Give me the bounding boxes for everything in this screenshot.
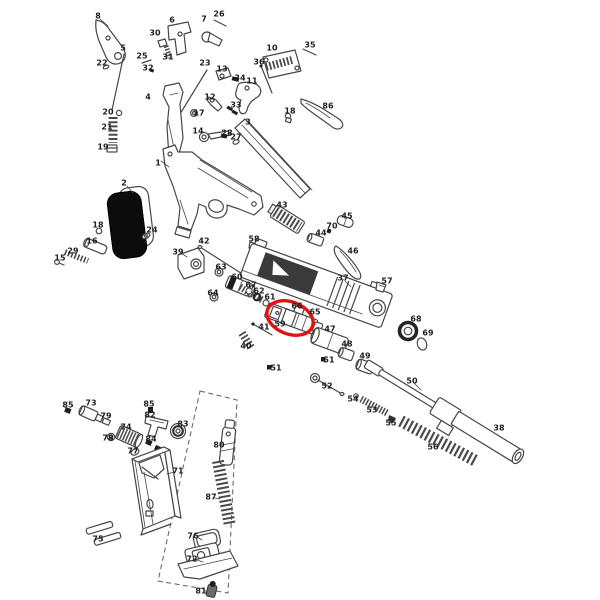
part-label-53: 53 <box>366 406 377 415</box>
part-label-49: 49 <box>359 352 371 361</box>
part-label-62: 62 <box>253 287 264 296</box>
part-label-7: 7 <box>201 15 207 24</box>
part-label-18: 18 <box>92 221 104 230</box>
part-label-58: 58 <box>248 235 260 244</box>
part-label-13: 13 <box>216 65 227 74</box>
part-label-11: 11 <box>246 77 258 86</box>
part-label-17: 17 <box>193 109 204 118</box>
part-label-48: 48 <box>341 340 353 349</box>
part-label-16: 16 <box>86 237 98 246</box>
part-label-64: 64 <box>207 289 219 298</box>
part-label-68: 68 <box>410 315 422 324</box>
valve-81 <box>206 580 219 598</box>
part-label-6: 6 <box>169 16 175 25</box>
part-label-75: 75 <box>92 535 104 544</box>
part-label-60: 60 <box>231 273 243 282</box>
part-label-23: 23 <box>199 59 210 68</box>
part-label-25: 25 <box>136 52 148 61</box>
part-label-47: 47 <box>324 325 335 334</box>
part-label-84: 84 <box>145 435 157 444</box>
exploded-diagram-svg: 8267630355102531362223133234114123386182… <box>0 0 600 600</box>
part-label-27: 27 <box>230 133 241 142</box>
part-label-40: 40 <box>240 342 252 351</box>
part-label-33: 33 <box>230 101 241 110</box>
part-label-46: 46 <box>347 247 359 256</box>
part-label-65: 65 <box>309 308 321 317</box>
part-label-36: 36 <box>253 58 265 67</box>
grip-panel-2 <box>106 190 148 260</box>
part-label-15: 15 <box>54 254 66 263</box>
magazine-body-71 <box>132 447 181 535</box>
part-label-42: 42 <box>198 237 209 246</box>
part-label-31: 31 <box>162 53 174 62</box>
part-label-74: 74 <box>120 423 132 432</box>
part-label-26: 26 <box>213 10 225 19</box>
part-label-35: 35 <box>304 41 316 50</box>
part-label-29: 29 <box>67 247 79 256</box>
part-label-32: 32 <box>142 64 153 73</box>
frame-1 <box>163 145 263 238</box>
hammer-group <box>96 20 126 64</box>
ring-68 <box>400 323 417 340</box>
cover-plate-group <box>263 50 301 78</box>
part-label-18: 18 <box>284 107 296 116</box>
part-label-54: 54 <box>347 395 359 404</box>
part-label-5: 5 <box>120 44 126 53</box>
part-label-37: 37 <box>337 274 348 283</box>
part-label-1: 1 <box>155 159 161 168</box>
part-label-82: 82 <box>144 411 155 420</box>
part-label-51: 51 <box>323 356 335 365</box>
part-label-45: 45 <box>341 212 353 221</box>
part-label-34: 34 <box>234 74 246 83</box>
part-label-72: 72 <box>186 555 197 564</box>
part-label-57: 57 <box>381 277 392 286</box>
part-label-69: 69 <box>422 329 434 338</box>
part-label-10: 10 <box>266 44 278 53</box>
oring-69 <box>416 337 429 352</box>
part-label-12: 12 <box>204 93 215 102</box>
part-label-14: 14 <box>192 127 204 136</box>
part-label-59: 59 <box>274 320 286 329</box>
part-label-87: 87 <box>205 493 216 502</box>
pin-35 <box>303 49 316 55</box>
part-label-78: 78 <box>102 434 114 443</box>
part-label-20: 20 <box>102 108 114 117</box>
part-label-56: 56 <box>427 443 439 452</box>
part-label-19: 19 <box>97 143 109 152</box>
magazine-spring-87 <box>218 461 230 526</box>
part-label-80: 80 <box>213 441 225 450</box>
part-label-39: 39 <box>172 248 184 257</box>
part-label-85: 85 <box>143 400 155 409</box>
part-label-4: 4 <box>145 93 151 102</box>
part-label-8: 8 <box>95 12 101 21</box>
part-label-24: 24 <box>146 226 158 235</box>
part-label-38: 38 <box>493 424 505 433</box>
part-label-86: 86 <box>322 102 334 111</box>
strip-75a <box>86 521 114 535</box>
part-label-3: 3 <box>245 118 251 127</box>
knocker-group <box>202 20 226 46</box>
part-label-81: 81 <box>195 587 207 596</box>
part-label-66: 66 <box>291 302 303 311</box>
part-label-63: 63 <box>215 263 226 272</box>
part-label-83: 83 <box>177 420 188 429</box>
part-label-55: 55 <box>385 419 397 428</box>
part-label-52: 52 <box>321 382 332 391</box>
part-label-21: 21 <box>101 123 113 132</box>
part-label-30: 30 <box>149 29 161 38</box>
part-label-44: 44 <box>315 229 327 238</box>
diagram-canvas: 8267630355102531362223133234114123386182… <box>0 0 600 600</box>
part-label-77: 77 <box>127 447 138 456</box>
outer-barrel-38 <box>425 397 527 474</box>
part-label-2: 2 <box>121 179 127 188</box>
part-label-61: 61 <box>264 293 276 302</box>
part-label-50: 50 <box>406 377 418 386</box>
part-label-22: 22 <box>96 59 107 68</box>
part-label-85: 85 <box>62 401 74 410</box>
part-label-71: 71 <box>172 467 184 476</box>
part-label-41: 41 <box>258 323 270 332</box>
cylinder-48 <box>337 347 355 362</box>
part-label-76: 76 <box>187 532 199 541</box>
hammer-strut-spring-group <box>107 54 124 152</box>
part-label-70: 70 <box>326 222 338 231</box>
part-label-43: 43 <box>276 201 287 210</box>
part-label-79: 79 <box>100 412 112 421</box>
part-label-51: 51 <box>270 364 282 373</box>
part-label-73: 73 <box>85 399 96 408</box>
